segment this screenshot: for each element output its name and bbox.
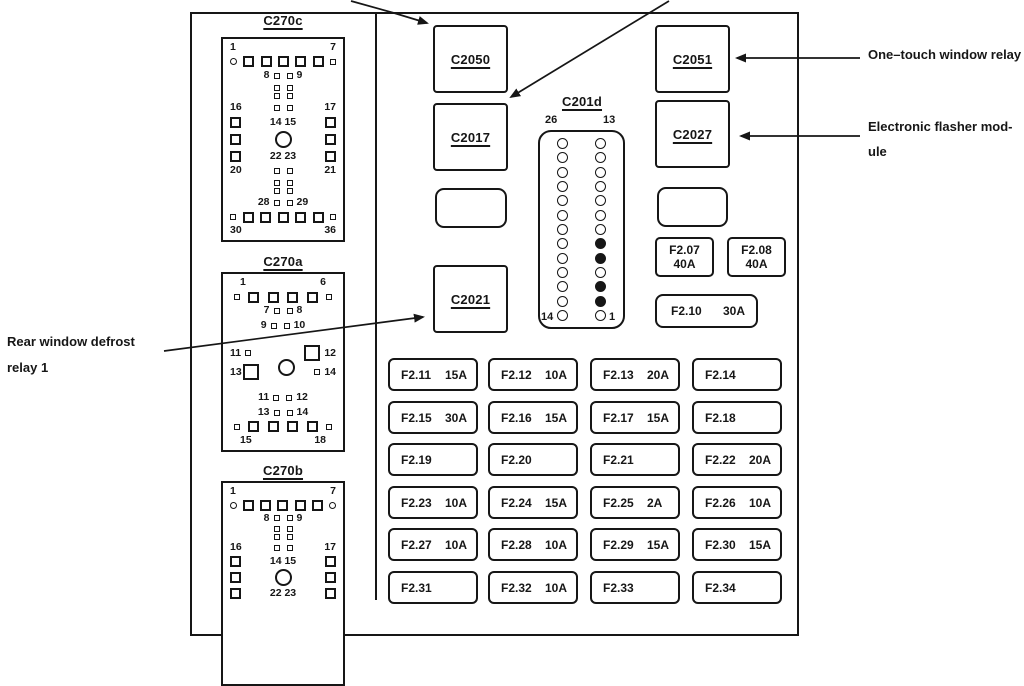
fuse-amp: 15A	[647, 538, 669, 552]
fuse-amp: 30A	[445, 411, 467, 425]
pin-row: 28 29	[230, 197, 336, 209]
fuse-name: F2.22	[705, 453, 749, 467]
c201d-pin-row	[540, 195, 623, 206]
pin-row	[230, 212, 336, 223]
fuse-F2.24: F2.2415A	[488, 486, 578, 519]
fuse-amp: 15A	[545, 496, 567, 510]
empty-relay-slot	[435, 188, 507, 228]
pin-square-small	[287, 188, 293, 194]
connector-title-c201d: C201d	[540, 94, 624, 109]
fuse-name: F2.26	[705, 496, 749, 510]
fuse-F2.12: F2.1210A	[488, 358, 578, 391]
pin-square	[230, 588, 241, 599]
pin-label: 30	[230, 225, 242, 237]
pin-square	[261, 56, 272, 67]
pin-square	[312, 500, 323, 511]
fuse-grid: F2.1115AF2.1210AF2.1320AF2.14F2.1530AF2.…	[388, 358, 783, 604]
label-line: relay 1	[7, 355, 135, 381]
spacer	[230, 335, 336, 343]
pin-square-small	[314, 369, 320, 375]
fuse-F2.27: F2.2710A	[388, 528, 478, 561]
pin-square	[230, 151, 241, 162]
c201d-pin-filled	[595, 253, 606, 264]
pin-row: 13 14	[230, 407, 336, 419]
pin-label: 8	[264, 70, 270, 82]
c201d-pin-row	[540, 152, 623, 163]
connector-c201d-box	[538, 130, 625, 329]
pin-square	[260, 500, 271, 511]
pin-label: 16	[230, 542, 242, 554]
connector-c270c-box: 1 7 8 9 16 17 14 15 22 23 20 21	[221, 37, 345, 242]
fuse-F2.18: F2.18	[692, 401, 782, 434]
fuse-name: F2.08	[741, 243, 772, 257]
pin-label: 18	[314, 435, 326, 447]
pin-square-small	[274, 526, 280, 532]
empty-relay-slot	[657, 187, 728, 227]
c201d-pin-open	[557, 181, 568, 192]
c201d-pin-label-1: 1	[609, 311, 615, 323]
fuse-box-diagram-page: { "connectors": { "c270c": {"title":"C27…	[0, 0, 1024, 600]
c201d-pin-row	[540, 224, 623, 235]
pin-label: 15	[240, 435, 252, 447]
pin-square	[307, 292, 318, 303]
pin-row	[230, 188, 336, 194]
pin-square-small	[274, 180, 280, 186]
c201d-pin-row	[540, 253, 623, 264]
pin-square	[260, 212, 271, 223]
fuse-F2.31: F2.31	[388, 571, 478, 604]
connector-c2051: C2051	[655, 25, 730, 93]
c201d-pin-open	[595, 210, 606, 221]
connector-c270b-box: 1 7 8 9 16 17 14 15 22 23	[221, 481, 345, 686]
c201d-pin-open	[595, 310, 606, 321]
pin-square	[287, 292, 298, 303]
pin-square-small	[287, 73, 293, 79]
pin-label: 8	[264, 513, 270, 525]
fuse-F2.33: F2.33	[590, 571, 680, 604]
pin-square	[230, 134, 241, 145]
pin-square-small	[287, 105, 293, 111]
pin-pair	[271, 323, 290, 329]
pin-row: 16 17	[230, 542, 336, 554]
pin-square-small	[274, 410, 280, 416]
pin-row: 9 10	[230, 320, 336, 332]
fuse-name: F2.18	[705, 411, 749, 425]
fuse-amp: 40A	[673, 257, 695, 271]
connector-title-c270c: C270c	[190, 13, 376, 28]
pin-label: 14	[297, 407, 309, 419]
fuse-F2.29: F2.2915A	[590, 528, 680, 561]
pin-label: 8	[297, 305, 303, 317]
c201d-pin-open	[557, 296, 568, 307]
pin-row: 20 21	[230, 165, 336, 177]
pin-square	[295, 56, 306, 67]
c201d-pin-label-13: 13	[603, 114, 615, 126]
c201d-pin-row	[540, 296, 623, 307]
pin-square	[268, 421, 279, 432]
pin-square	[295, 500, 306, 511]
pin-label: 1	[230, 486, 236, 498]
pin-label: 10	[294, 320, 306, 332]
pin-square-small	[234, 424, 240, 430]
c201d-pin-open	[595, 167, 606, 178]
fuse-F2.32: F2.3210A	[488, 571, 578, 604]
pin-pair	[274, 73, 293, 79]
pin-row: 22 23	[230, 151, 336, 163]
pin-square-small	[274, 188, 280, 194]
pin-square	[230, 556, 241, 567]
label-one-touch-window-relay: One–touch window relay	[868, 42, 1021, 67]
fuse-amp: 40A	[745, 257, 767, 271]
pin-label: 6	[320, 277, 326, 289]
pin-row: 8 9	[230, 513, 336, 525]
pin-row	[230, 534, 336, 540]
pin-square-small	[274, 73, 280, 79]
pin-label: 17	[324, 542, 336, 554]
fuse-F2.30: F2.3015A	[692, 528, 782, 561]
pin-square	[325, 134, 336, 145]
pin-square	[248, 292, 259, 303]
pin-pair	[274, 105, 293, 111]
pin-square-small	[234, 294, 240, 300]
pin-pair	[274, 526, 293, 532]
connector-title-c270b: C270b	[190, 463, 376, 478]
pin-label: 17	[324, 102, 336, 114]
pin-label: 16	[230, 102, 242, 114]
fuse-name: F2.20	[501, 453, 545, 467]
fuse-name: F2.21	[603, 453, 647, 467]
pin-square	[278, 56, 289, 67]
pin-pair	[274, 545, 293, 551]
fuse-amp: 10A	[445, 496, 467, 510]
c201d-pin-open	[557, 267, 568, 278]
fuse-amp: 10A	[749, 496, 771, 510]
pin-label: 14	[324, 367, 336, 379]
fuse-name: F2.17	[603, 411, 647, 425]
pin-square	[325, 556, 336, 567]
pin-row: 7 8	[230, 305, 336, 317]
connector-c2021: C2021	[433, 265, 508, 333]
pin-label: 11	[258, 392, 269, 404]
connector-c2017: C2017	[433, 103, 508, 171]
fuse-name: F2.15	[401, 411, 445, 425]
connector-title-c270a: C270a	[190, 254, 376, 269]
pin-label: 28	[258, 197, 270, 209]
pin-square-small	[287, 534, 293, 540]
fuse-F2.17: F2.1715A	[590, 401, 680, 434]
pin-label-row: 1 7	[230, 42, 336, 54]
pin-label: 13	[230, 367, 242, 379]
pin-square	[325, 572, 336, 583]
c201d-pin-label-26: 26	[545, 114, 557, 126]
c201d-pin-open	[557, 281, 568, 292]
pin-square	[268, 292, 279, 303]
fuse-name: F2.25	[603, 496, 647, 510]
pin-row	[230, 526, 336, 532]
pin-pair	[274, 93, 293, 99]
c201d-pin-filled	[595, 281, 606, 292]
pin-square	[325, 117, 336, 128]
fuse-F2.14: F2.14	[692, 358, 782, 391]
c201d-pin-row	[540, 238, 623, 249]
pin-row: 16 17	[230, 102, 336, 114]
fuse-amp: 10A	[545, 581, 567, 595]
pin-square	[313, 56, 324, 67]
fuse-F2.13: F2.1320A	[590, 358, 680, 391]
pin-label: 29	[297, 197, 309, 209]
pin-pair	[274, 85, 293, 91]
pin-row	[230, 131, 336, 148]
fuse-F2.22: F2.2220A	[692, 443, 782, 476]
pin-circle-small	[230, 58, 237, 65]
fuse-F2.10: F2.10 30A	[655, 294, 758, 328]
pin-pair	[274, 308, 293, 314]
pin-square-small	[274, 168, 280, 174]
pin-group: 14	[314, 367, 336, 379]
pin-square	[248, 421, 259, 432]
pin-square-small	[274, 85, 280, 91]
fuse-amp: 2A	[647, 496, 662, 510]
spacer	[230, 383, 336, 389]
connector-keyway-circle	[275, 569, 292, 586]
fuse-name: F2.14	[705, 368, 749, 382]
pin-label: 13	[258, 407, 270, 419]
fuse-amp: 10A	[445, 538, 467, 552]
pin-row	[230, 500, 336, 511]
connector-keyway-circle	[278, 359, 295, 376]
pin-square-small	[274, 534, 280, 540]
c201d-pin-open	[557, 310, 568, 321]
fuse-name: F2.12	[501, 368, 545, 382]
pin-square	[243, 56, 254, 67]
pin-label: 9	[297, 513, 303, 525]
pin-group: 13	[230, 364, 259, 380]
pin-circle-small	[230, 502, 237, 509]
pin-group: 12	[304, 345, 336, 361]
fuse-name: F2.19	[401, 453, 445, 467]
pin-circle-small	[329, 502, 336, 509]
pin-square-small	[286, 395, 292, 401]
pin-square	[278, 212, 289, 223]
fuse-name: F2.32	[501, 581, 545, 595]
pin-label: 12	[324, 348, 336, 360]
c201d-pin-open	[557, 138, 568, 149]
fuse-amp: 15A	[445, 368, 467, 382]
fuse-F2.16: F2.1615A	[488, 401, 578, 434]
pin-row	[230, 56, 336, 67]
c201d-pin-row	[540, 181, 623, 192]
pin-square	[325, 588, 336, 599]
pin-label: 12	[296, 392, 308, 404]
connector-c2050: C2050	[433, 25, 508, 93]
label-line: Rear window defrost	[7, 329, 135, 355]
connector-label: C2021	[451, 292, 490, 307]
pin-row	[230, 292, 336, 303]
c201d-pin-open	[557, 167, 568, 178]
pin-row: 13 14	[230, 364, 336, 380]
fuse-F2.15: F2.1530A	[388, 401, 478, 434]
fuse-F2.28: F2.2810A	[488, 528, 578, 561]
pin-square-small	[271, 323, 277, 329]
c201d-pin-row	[540, 267, 623, 278]
connector-label: C2027	[673, 127, 712, 142]
c201d-pin-open	[557, 253, 568, 264]
fuse-amp: 20A	[647, 368, 669, 382]
fuse-amp: 15A	[545, 411, 567, 425]
connector-label: C2051	[673, 52, 712, 67]
pin-square-small	[230, 214, 236, 220]
c201d-pin-row	[540, 210, 623, 221]
fuse-F2.21: F2.21	[590, 443, 680, 476]
pin-square	[230, 117, 241, 128]
fuse-amp: 15A	[647, 411, 669, 425]
connector-c270a-box: 1 6 7 8 9 10 11 12 13	[221, 272, 345, 452]
pin-label-row: 15 18	[230, 435, 336, 447]
pin-square	[313, 212, 324, 223]
fuse-name: F2.11	[401, 368, 445, 382]
pin-row	[230, 421, 336, 432]
pin-square-small	[284, 323, 290, 329]
pin-group: 11	[230, 348, 251, 360]
pin-pair	[273, 395, 292, 401]
connector-keyway-circle	[275, 131, 292, 148]
connector-label: C2050	[451, 52, 490, 67]
pin-square	[243, 500, 254, 511]
pin-pair	[274, 180, 293, 186]
pin-label: 9	[261, 320, 267, 332]
pin-label: 14 15	[270, 117, 296, 129]
pin-square	[307, 421, 318, 432]
c201d-pin-open	[557, 152, 568, 163]
pin-square-small	[245, 350, 251, 356]
pin-label: 1	[230, 42, 236, 54]
pin-square-small	[274, 308, 280, 314]
c201d-pin-open	[595, 152, 606, 163]
pin-square-large	[243, 364, 259, 380]
connector-c2027: C2027	[655, 100, 730, 168]
pin-row: 14 15	[230, 117, 336, 129]
pin-square-small	[287, 410, 293, 416]
pin-label-row: 30 36	[230, 225, 336, 237]
c201d-pin-open	[595, 181, 606, 192]
fuse-amp: 30A	[723, 304, 745, 318]
c201d-pin-open	[595, 138, 606, 149]
pin-label: 22 23	[270, 588, 296, 600]
c201d-pin-filled	[595, 296, 606, 307]
pin-square-small	[330, 214, 336, 220]
pin-square-small	[326, 294, 332, 300]
fuse-F2.19: F2.19	[388, 443, 478, 476]
pin-square-small	[330, 59, 336, 65]
c201d-pin-open	[595, 224, 606, 235]
fuse-amp: 10A	[545, 538, 567, 552]
pin-label-row: 1 6	[230, 277, 336, 289]
pin-square-small	[274, 200, 280, 206]
label-line: Electronic flasher mod-	[868, 114, 1012, 139]
pin-row	[230, 180, 336, 186]
fuse-name: F2.10	[671, 304, 723, 318]
label-line: ule	[868, 139, 1012, 164]
pin-row	[230, 93, 336, 99]
left-panel-divider-line	[375, 12, 377, 600]
pin-square	[295, 212, 306, 223]
pin-square	[277, 500, 288, 511]
pin-pair	[274, 534, 293, 540]
pin-label: 7	[330, 486, 336, 498]
pin-row	[230, 85, 336, 91]
fuse-name: F2.31	[401, 581, 445, 595]
pin-square-large	[304, 345, 320, 361]
fuse-amp: 10A	[545, 368, 567, 382]
pin-square-small	[287, 308, 293, 314]
c201d-pin-row	[540, 167, 623, 178]
fuse-name: F2.13	[603, 368, 647, 382]
pin-label: 7	[330, 42, 336, 54]
pin-row: 11 12	[230, 392, 336, 404]
label-electronic-flasher-module: Electronic flasher mod- ule	[868, 114, 1012, 164]
fuse-F2.26: F2.2610A	[692, 486, 782, 519]
pin-square-small	[326, 424, 332, 430]
pin-label: 21	[324, 165, 336, 177]
c201d-pin-row	[540, 281, 623, 292]
pin-label: 9	[297, 70, 303, 82]
c201d-pin-open	[557, 238, 568, 249]
c201d-pin-open	[557, 210, 568, 221]
pin-pair	[274, 515, 293, 521]
pin-square	[230, 572, 241, 583]
fuse-amp: 20A	[749, 453, 771, 467]
pin-square-small	[287, 200, 293, 206]
pin-square-small	[274, 545, 280, 551]
fuse-name: F2.23	[401, 496, 445, 510]
pin-row	[230, 569, 336, 586]
pin-pair	[274, 200, 293, 206]
pin-row: 8 9	[230, 70, 336, 82]
fuse-name: F2.30	[705, 538, 749, 552]
pin-pair	[274, 188, 293, 194]
fuse-name: F2.07	[669, 243, 700, 257]
pin-row: 22 23	[230, 588, 336, 600]
fuse-name: F2.29	[603, 538, 647, 552]
pin-square	[325, 151, 336, 162]
pin-label: 14 15	[270, 556, 296, 568]
fuse-name: F2.28	[501, 538, 545, 552]
fuse-name: F2.34	[705, 581, 749, 595]
fuse-F2.07: F2.07 40A	[655, 237, 714, 277]
fuse-name: F2.16	[501, 411, 545, 425]
fuse-name: F2.24	[501, 496, 545, 510]
pin-label: 7	[264, 305, 270, 317]
c201d-pin-open	[595, 267, 606, 278]
c201d-pin-filled	[595, 238, 606, 249]
pin-square-small	[287, 180, 293, 186]
pin-pair	[274, 168, 293, 174]
fuse-name: F2.33	[603, 581, 647, 595]
pin-square	[243, 212, 254, 223]
c201d-pin-label-14: 14	[541, 311, 553, 323]
pin-square-small	[287, 515, 293, 521]
fuse-name: F2.27	[401, 538, 445, 552]
connector-label: C2017	[451, 130, 490, 145]
pin-row: 14 15	[230, 556, 336, 568]
fuse-F2.08: F2.08 40A	[727, 237, 786, 277]
pin-square-small	[287, 85, 293, 91]
c201d-pin-row	[540, 138, 623, 149]
fuse-F2.20: F2.20	[488, 443, 578, 476]
pin-square-small	[287, 93, 293, 99]
pin-square-small	[287, 545, 293, 551]
pin-square	[287, 421, 298, 432]
